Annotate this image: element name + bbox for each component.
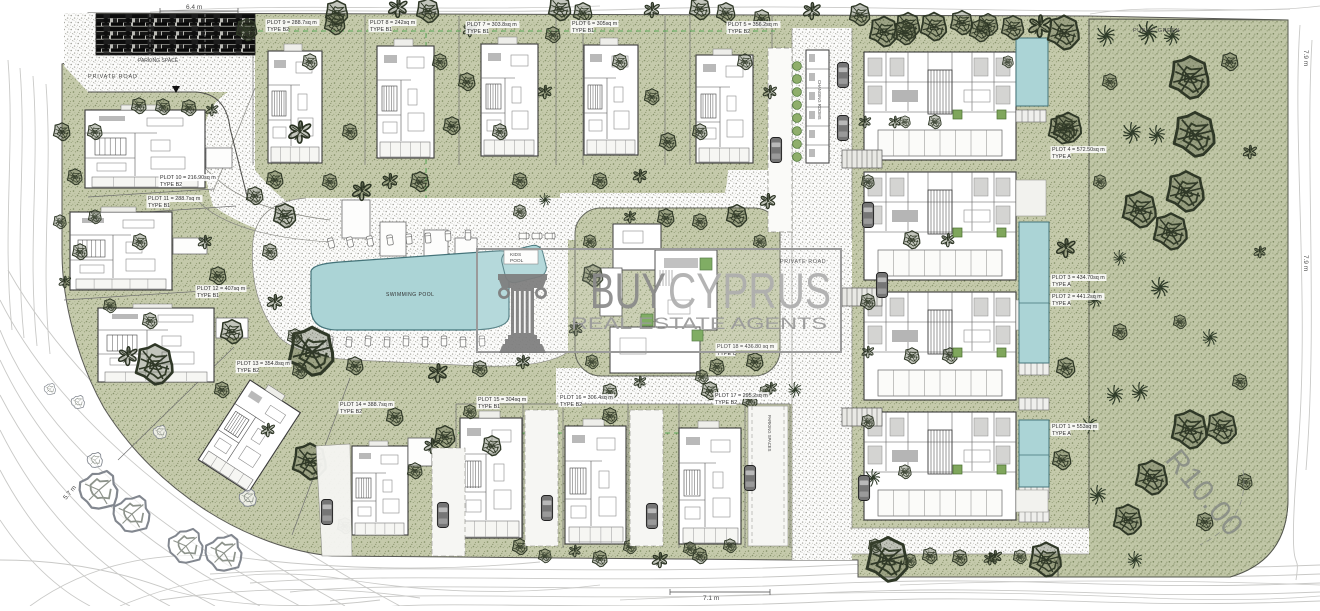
svg-text:PUBLIC GREEN: PUBLIC GREEN xyxy=(1133,28,1180,34)
svg-text:PLOT 8 = 242sq m: PLOT 8 = 242sq m xyxy=(370,20,416,26)
svg-text:PLOT 16 = 306.4sq m: PLOT 16 = 306.4sq m xyxy=(560,395,613,401)
svg-text:TYPE A: TYPE A xyxy=(1052,154,1071,160)
svg-text:TYPE B2: TYPE B2 xyxy=(715,400,737,406)
svg-text:PLOT 1 = 553sq m: PLOT 1 = 553sq m xyxy=(1052,424,1098,430)
svg-text:PLOT 10 = 216.90sq m: PLOT 10 = 216.90sq m xyxy=(160,175,216,181)
svg-text:PLOT 3 = 434.70sq m: PLOT 3 = 434.70sq m xyxy=(1052,275,1105,281)
svg-text:PLOT 14 = 388.7sq m: PLOT 14 = 388.7sq m xyxy=(340,402,393,408)
svg-text:7.9 m: 7.9 m xyxy=(1302,50,1309,66)
svg-text:7.1 m: 7.1 m xyxy=(703,595,719,602)
svg-text:PLOT 15 = 304sq m: PLOT 15 = 304sq m xyxy=(478,397,527,403)
svg-text:REAL ESTATE AGENTS: REAL ESTATE AGENTS xyxy=(571,315,827,333)
svg-text:PLOT 9 = 288.7sq m: PLOT 9 = 288.7sq m xyxy=(267,20,317,26)
svg-text:TYPE B1: TYPE B1 xyxy=(467,29,489,35)
svg-text:TYPE B1: TYPE B1 xyxy=(148,203,170,209)
svg-text:PLOT 17 = 295.2sq m: PLOT 17 = 295.2sq m xyxy=(715,393,768,399)
svg-text:TYPE B2: TYPE B2 xyxy=(237,368,259,374)
svg-text:TYPE A: TYPE A xyxy=(1052,282,1071,288)
svg-text:PLOT 4 = 572.50sq m: PLOT 4 = 572.50sq m xyxy=(1052,147,1105,153)
svg-text:TYPE B1: TYPE B1 xyxy=(370,27,392,33)
svg-text:TYPE B1: TYPE B1 xyxy=(197,293,219,299)
svg-text:TYPE B2: TYPE B2 xyxy=(560,402,582,408)
svg-text:6.4 m: 6.4 m xyxy=(186,4,202,11)
svg-text:PLOT 13 = 354.8sq m: PLOT 13 = 354.8sq m xyxy=(237,361,290,367)
svg-text:CHANGING ROOMS: CHANGING ROOMS xyxy=(817,80,822,120)
svg-text:TYPE A: TYPE A xyxy=(1052,301,1071,307)
svg-text:BUY: BUY xyxy=(590,263,666,319)
svg-text:PLOT 11 = 288.7sq m: PLOT 11 = 288.7sq m xyxy=(148,196,201,202)
svg-text:PLOT 6 = 305sq m: PLOT 6 = 305sq m xyxy=(572,21,618,27)
svg-text:CYPRUS: CYPRUS xyxy=(668,263,831,319)
svg-text:PLOT 12 = 407sq m: PLOT 12 = 407sq m xyxy=(197,286,246,292)
svg-text:PRIVATE ROAD: PRIVATE ROAD xyxy=(88,74,138,80)
svg-text:TYPE B2: TYPE B2 xyxy=(267,27,289,33)
svg-text:SWIMMING POOL: SWIMMING POOL xyxy=(386,292,434,298)
svg-text:PARKING SPACES: PARKING SPACES xyxy=(767,415,772,452)
svg-text:PLOT 2 = 441.2sq m: PLOT 2 = 441.2sq m xyxy=(1052,294,1102,300)
svg-text:PARKING SPACE: PARKING SPACE xyxy=(138,58,179,64)
svg-text:TYPE B2: TYPE B2 xyxy=(340,409,362,415)
svg-text:TYPE B2: TYPE B2 xyxy=(160,182,182,188)
svg-text:TYPE B1: TYPE B1 xyxy=(478,404,500,410)
svg-text:TYPE B2: TYPE B2 xyxy=(728,29,750,35)
svg-text:TYPE A: TYPE A xyxy=(1052,431,1071,437)
svg-text:TYPE B1: TYPE B1 xyxy=(572,28,594,34)
svg-text:7.9 m: 7.9 m xyxy=(1302,255,1309,271)
svg-text:PLOT 7 = 303.8sq m: PLOT 7 = 303.8sq m xyxy=(467,22,517,28)
svg-text:PLOT 5 = 356.2sq m: PLOT 5 = 356.2sq m xyxy=(728,22,778,28)
